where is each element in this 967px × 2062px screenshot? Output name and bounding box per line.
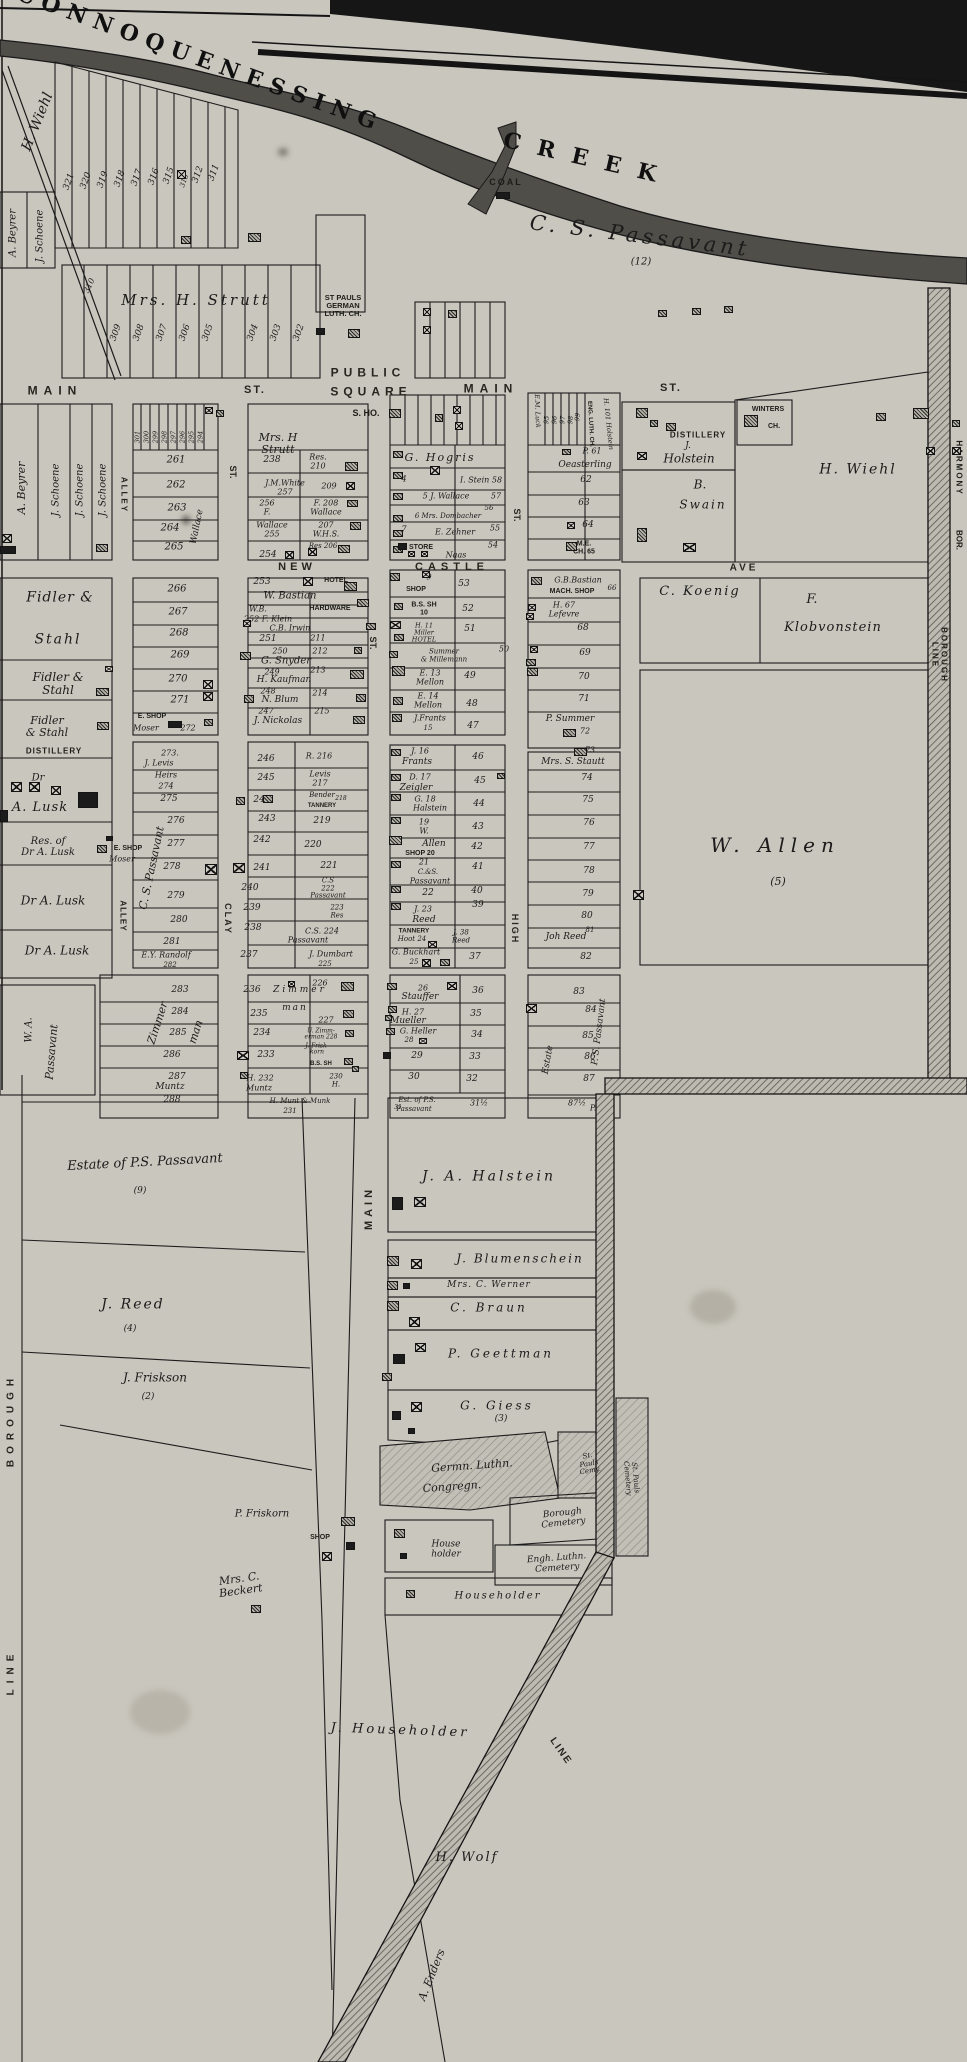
building-symbol-hatch [352, 1066, 359, 1072]
building-symbol-x [526, 613, 534, 620]
building-symbol-hatch [338, 545, 350, 553]
building-symbol-hatch [344, 582, 357, 591]
building-symbol-hatch [666, 423, 676, 431]
building-symbol-hatch [394, 634, 404, 641]
building-symbol-hatch [440, 959, 450, 966]
building-symbol-hatch [393, 697, 403, 705]
building-symbol-x [243, 620, 251, 627]
building-symbol-hatch [389, 836, 402, 845]
building-symbol-hatch [393, 472, 403, 479]
building-symbol-hatch [263, 795, 273, 803]
building-symbol-hatch [913, 408, 929, 419]
building-symbol-x [205, 864, 217, 875]
building-symbol-hatch [692, 308, 701, 315]
building-symbol-hatch [388, 1006, 397, 1013]
building-symbol-x [414, 1197, 426, 1207]
building-symbol-x [637, 452, 647, 460]
building-symbol-x [422, 959, 431, 967]
building-symbol-hatch [392, 666, 405, 676]
building-symbol-hatch [448, 310, 457, 318]
building-symbol-x [633, 890, 644, 900]
building-symbol-x [453, 406, 461, 414]
building-symbol-x [411, 1259, 422, 1269]
building-symbol-hatch [650, 420, 658, 427]
building-symbol-hatch [392, 714, 402, 722]
building-symbol-x [322, 1552, 332, 1561]
building-symbol-x [303, 577, 313, 586]
building-symbol-solid [168, 721, 182, 728]
building-symbol-hatch [744, 415, 758, 427]
building-symbol-x [51, 786, 61, 795]
building-symbol-hatch [658, 310, 667, 317]
building-symbol-hatch [387, 1281, 398, 1290]
building-symbol-hatch [353, 716, 365, 724]
building-symbol-x [29, 782, 40, 792]
building-symbol-x [528, 604, 536, 611]
building-symbol-solid [496, 192, 510, 199]
building-symbol-x [408, 551, 415, 557]
building-symbol-hatch [391, 886, 401, 893]
building-symbol-x [203, 680, 213, 689]
building-symbol-hatch [526, 659, 536, 666]
building-symbol-x [526, 1004, 537, 1013]
building-symbol-hatch [566, 542, 577, 551]
building-symbol-hatch [389, 409, 401, 418]
building-symbol-x [926, 447, 935, 455]
building-symbol-x [2, 534, 12, 543]
building-symbol-x [447, 982, 457, 990]
building-symbol-x [177, 170, 186, 179]
building-symbol-hatch [391, 749, 401, 756]
building-symbol-hatch [527, 668, 538, 676]
building-symbol-hatch [952, 420, 960, 427]
building-symbol-x [530, 646, 538, 653]
building-symbol-hatch [562, 449, 571, 455]
building-symbol-x [308, 548, 317, 556]
building-symbol-x [11, 782, 22, 792]
building-symbol-hatch [394, 1529, 405, 1538]
building-symbol-hatch [343, 1010, 354, 1018]
building-symbol-hatch [356, 694, 366, 702]
building-symbol-solid [392, 1411, 401, 1420]
building-symbol-hatch [637, 528, 647, 542]
building-symbol-hatch [244, 695, 254, 703]
building-symbol-hatch [497, 773, 505, 779]
building-symbol-solid [392, 1197, 403, 1210]
building-symbol-hatch [393, 530, 403, 537]
building-symbol-hatch [248, 233, 261, 242]
plat-map: CONNOQUENESSINGCREEKCOALC. S. Passavant(… [0, 0, 967, 2062]
building-symbol-solid [403, 1283, 410, 1289]
building-symbol-hatch [240, 1072, 248, 1079]
building-symbol-hatch [347, 500, 358, 507]
building-symbol-hatch [385, 1015, 392, 1021]
building-symbol-solid [78, 792, 98, 808]
building-symbol-x [346, 482, 355, 490]
building-symbol-solid [398, 543, 407, 550]
building-symbol-hatch [204, 719, 213, 726]
building-symbol-hatch [406, 1590, 415, 1598]
building-symbol-hatch [391, 903, 401, 910]
building-symbol-hatch [345, 1030, 354, 1037]
building-symbol-hatch [350, 670, 364, 679]
building-symbol-x [411, 1402, 422, 1412]
building-symbol-x [205, 407, 213, 414]
building-symbol-hatch [386, 1028, 395, 1035]
building-symbol-hatch [181, 236, 191, 244]
building-symbol-solid [408, 1428, 415, 1434]
building-symbol-solid [0, 546, 16, 554]
map-building-symbols-layer [0, 0, 967, 2062]
building-symbol-hatch [354, 647, 362, 654]
building-symbol-hatch [387, 983, 397, 990]
building-symbol-hatch [382, 1373, 392, 1381]
building-symbol-solid [400, 1553, 407, 1559]
building-symbol-x [390, 621, 401, 629]
building-symbol-solid [106, 836, 113, 841]
building-symbol-hatch [724, 306, 733, 313]
building-symbol-x [421, 551, 428, 557]
building-symbol-hatch [97, 845, 107, 853]
building-symbol-x [409, 1317, 420, 1327]
building-symbol-x [430, 466, 440, 475]
building-symbol-hatch [389, 651, 398, 658]
building-symbol-hatch [387, 1301, 399, 1311]
building-symbol-hatch [391, 817, 401, 824]
building-symbol-x [415, 1343, 426, 1352]
building-symbol-hatch [357, 599, 369, 607]
building-symbol-hatch [345, 462, 358, 471]
building-symbol-hatch [393, 493, 403, 500]
building-symbol-hatch [393, 451, 403, 458]
building-symbol-hatch [391, 774, 401, 781]
building-symbol-hatch [366, 623, 376, 630]
building-symbol-x [428, 941, 437, 948]
building-symbol-x [105, 666, 113, 672]
building-symbol-hatch [96, 544, 108, 552]
building-symbol-hatch [350, 522, 361, 530]
building-symbol-x [285, 551, 294, 559]
building-symbol-hatch [393, 515, 403, 522]
building-symbol-hatch [394, 603, 403, 610]
building-symbol-hatch [531, 577, 542, 585]
building-symbol-hatch [341, 982, 354, 991]
building-symbol-solid [393, 1354, 405, 1364]
building-symbol-hatch [216, 410, 224, 417]
building-symbol-hatch [97, 722, 109, 730]
building-symbol-hatch [348, 329, 360, 338]
building-symbol-x [203, 692, 213, 701]
building-symbol-hatch [574, 748, 587, 756]
building-symbol-hatch [344, 1058, 353, 1065]
building-symbol-hatch [251, 1605, 261, 1613]
building-symbol-hatch [96, 688, 109, 696]
building-symbol-x [455, 422, 463, 430]
building-symbol-hatch [236, 797, 245, 805]
building-symbol-hatch [341, 1517, 355, 1526]
building-symbol-hatch [563, 729, 576, 737]
building-symbol-hatch [391, 794, 401, 801]
building-symbol-x [288, 981, 295, 987]
building-symbol-hatch [387, 1256, 399, 1266]
building-symbol-x [952, 447, 961, 455]
building-symbol-hatch [876, 413, 886, 421]
building-symbol-solid [0, 810, 8, 822]
building-symbol-solid [346, 1542, 355, 1550]
building-symbol-x [419, 1038, 427, 1044]
building-symbol-x [423, 308, 431, 316]
building-symbol-x [233, 863, 245, 873]
building-symbol-x [422, 571, 430, 578]
building-symbol-x [237, 1051, 249, 1060]
building-symbol-solid [383, 1052, 391, 1059]
building-symbol-x [683, 543, 696, 552]
building-symbol-hatch [390, 573, 400, 581]
building-symbol-hatch [240, 652, 251, 660]
building-symbol-hatch [391, 861, 401, 868]
building-symbol-solid [316, 328, 325, 335]
building-symbol-hatch [435, 414, 443, 422]
building-symbol-hatch [636, 408, 648, 418]
building-symbol-x [567, 522, 575, 529]
building-symbol-x [423, 326, 431, 334]
